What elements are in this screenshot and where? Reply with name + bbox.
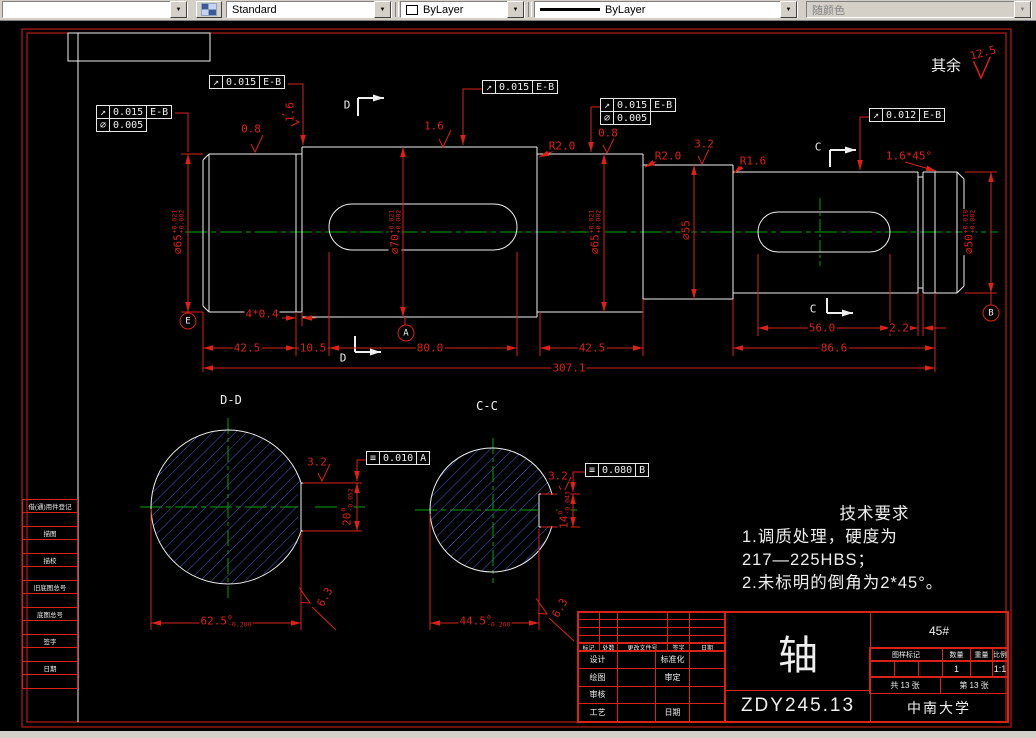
- margin-field-spacer: [22, 512, 78, 527]
- material: 45#: [870, 612, 1008, 649]
- margin-field-spacer: [22, 674, 78, 689]
- chevron-down-icon: ▼: [1014, 1, 1031, 18]
- style-icon-button[interactable]: [196, 1, 222, 18]
- text-style-value: Standard: [227, 4, 374, 16]
- color-combo[interactable]: ByLayer ▼: [400, 1, 525, 18]
- margin-field-spacer: [22, 593, 78, 608]
- technical-requirements: 技术要求 1.调质处理，硬度为 217—225HBS； 2.未标明的倒角为2*4…: [742, 500, 1007, 595]
- tech-req-line: 217—225HBS；: [742, 549, 1007, 572]
- layer-combo[interactable]: ▼: [2, 1, 188, 18]
- margin-field-label: 签字: [22, 634, 78, 648]
- sheet-number: 第 13 张: [940, 676, 1008, 694]
- margin-field-label: 底图总号: [22, 607, 78, 621]
- linetype-swatch-icon: [540, 8, 600, 11]
- role-label: 审核: [577, 686, 618, 705]
- chevron-down-icon[interactable]: ▼: [374, 1, 391, 18]
- sheet-margin-fields: 借(通)用件登记描图描校旧底图总号底图总号签字日期: [22, 500, 78, 689]
- sheets-total: 共 13 张: [869, 676, 941, 694]
- plot-style-value: 随颜色: [807, 2, 1014, 18]
- role-label: 标准化: [655, 650, 690, 669]
- plot-style-combo: 随颜色 ▼: [806, 1, 1032, 18]
- company-name: 中南大学: [870, 693, 1008, 722]
- role-label: 设计: [577, 650, 618, 669]
- toolbar-separator: [395, 2, 399, 17]
- role-label: 工艺: [577, 703, 618, 722]
- margin-field-label: 描图: [22, 526, 78, 540]
- margin-field-label: 日期: [22, 661, 78, 675]
- object-properties-toolbar: ▼ Standard ▼ ByLayer ▼ ByLayer ▼: [0, 0, 1036, 21]
- section-cut-markers: [355, 98, 856, 352]
- chevron-down-icon[interactable]: ▼: [507, 1, 524, 18]
- section-view-cc: [430, 448, 556, 572]
- section-view-dd: [151, 430, 311, 584]
- toolbar-separator: [528, 2, 532, 17]
- tech-req-line: 1.调质处理，硬度为: [742, 526, 1007, 549]
- role-label: 绘图: [577, 668, 618, 687]
- color-swatch-icon: [406, 5, 418, 15]
- part-name: 轴: [725, 612, 871, 691]
- text-style-combo[interactable]: Standard ▼: [226, 1, 392, 18]
- margin-field-label: 描校: [22, 553, 78, 567]
- margin-field-spacer: [22, 647, 78, 662]
- linetype-combo-value: ByLayer: [600, 4, 780, 16]
- margin-field-spacer: [22, 539, 78, 554]
- role-label: 审定: [655, 668, 690, 687]
- chevron-down-icon[interactable]: ▼: [780, 1, 797, 18]
- tech-req-line: 2.未标明的倒角为2*45°。: [742, 572, 1007, 595]
- color-combo-value: ByLayer: [418, 4, 507, 16]
- linetype-combo[interactable]: ByLayer ▼: [534, 1, 798, 18]
- tech-req-title: 技术要求: [742, 500, 1007, 524]
- margin-field-label: 旧底图总号: [22, 580, 78, 594]
- chevron-down-icon[interactable]: ▼: [170, 1, 187, 18]
- role-label: [655, 686, 690, 705]
- cad-application-window: ▼ Standard ▼ ByLayer ▼ ByLayer ▼: [0, 0, 1036, 738]
- grid-icon: [201, 3, 217, 16]
- status-strip: [0, 731, 1036, 738]
- dimension-arrows-single: [282, 84, 946, 492]
- role-label: 日期: [655, 703, 690, 722]
- margin-field-spacer: [22, 566, 78, 581]
- margin-field-label: 借(通)用件登记: [22, 499, 78, 513]
- drawing-number: ZDY245.13: [725, 690, 871, 722]
- margin-field-spacer: [22, 620, 78, 635]
- sheet-margin-lines: [68, 33, 210, 722]
